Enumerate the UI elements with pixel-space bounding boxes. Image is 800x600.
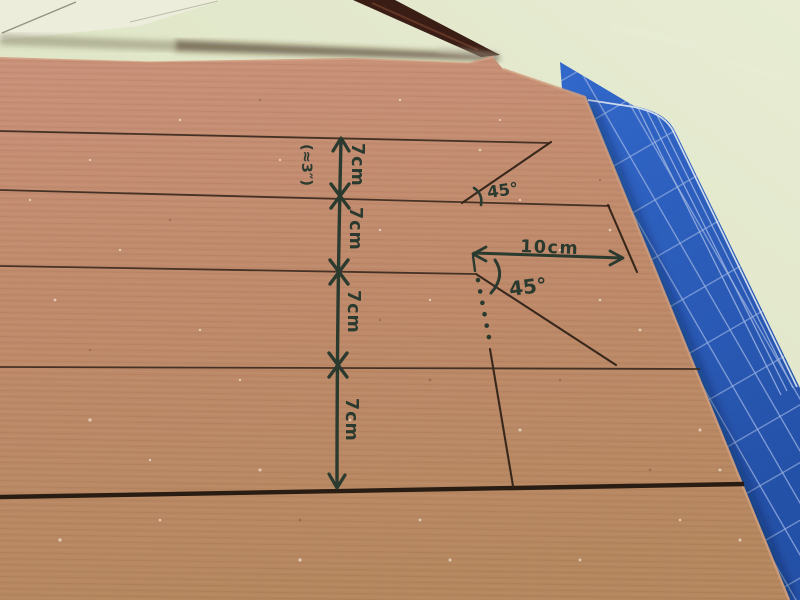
label-7cm-4: 7cm [341, 398, 361, 442]
label-45-middle: 45° [508, 273, 548, 301]
label-inches-note: (≈3″) [298, 144, 314, 186]
label-7cm-2: 7cm [345, 207, 365, 251]
scene-canvas: 7cm 7cm 7cm 7cm (≈3″) 45° 10cm 45° [0, 0, 800, 600]
label-7cm-3: 7cm [343, 290, 363, 334]
photo-scene: 7cm 7cm 7cm 7cm (≈3″) 45° 10cm 45° [0, 0, 800, 600]
label-7cm-1: 7cm [347, 143, 367, 187]
label-10cm: 10cm [520, 237, 580, 259]
